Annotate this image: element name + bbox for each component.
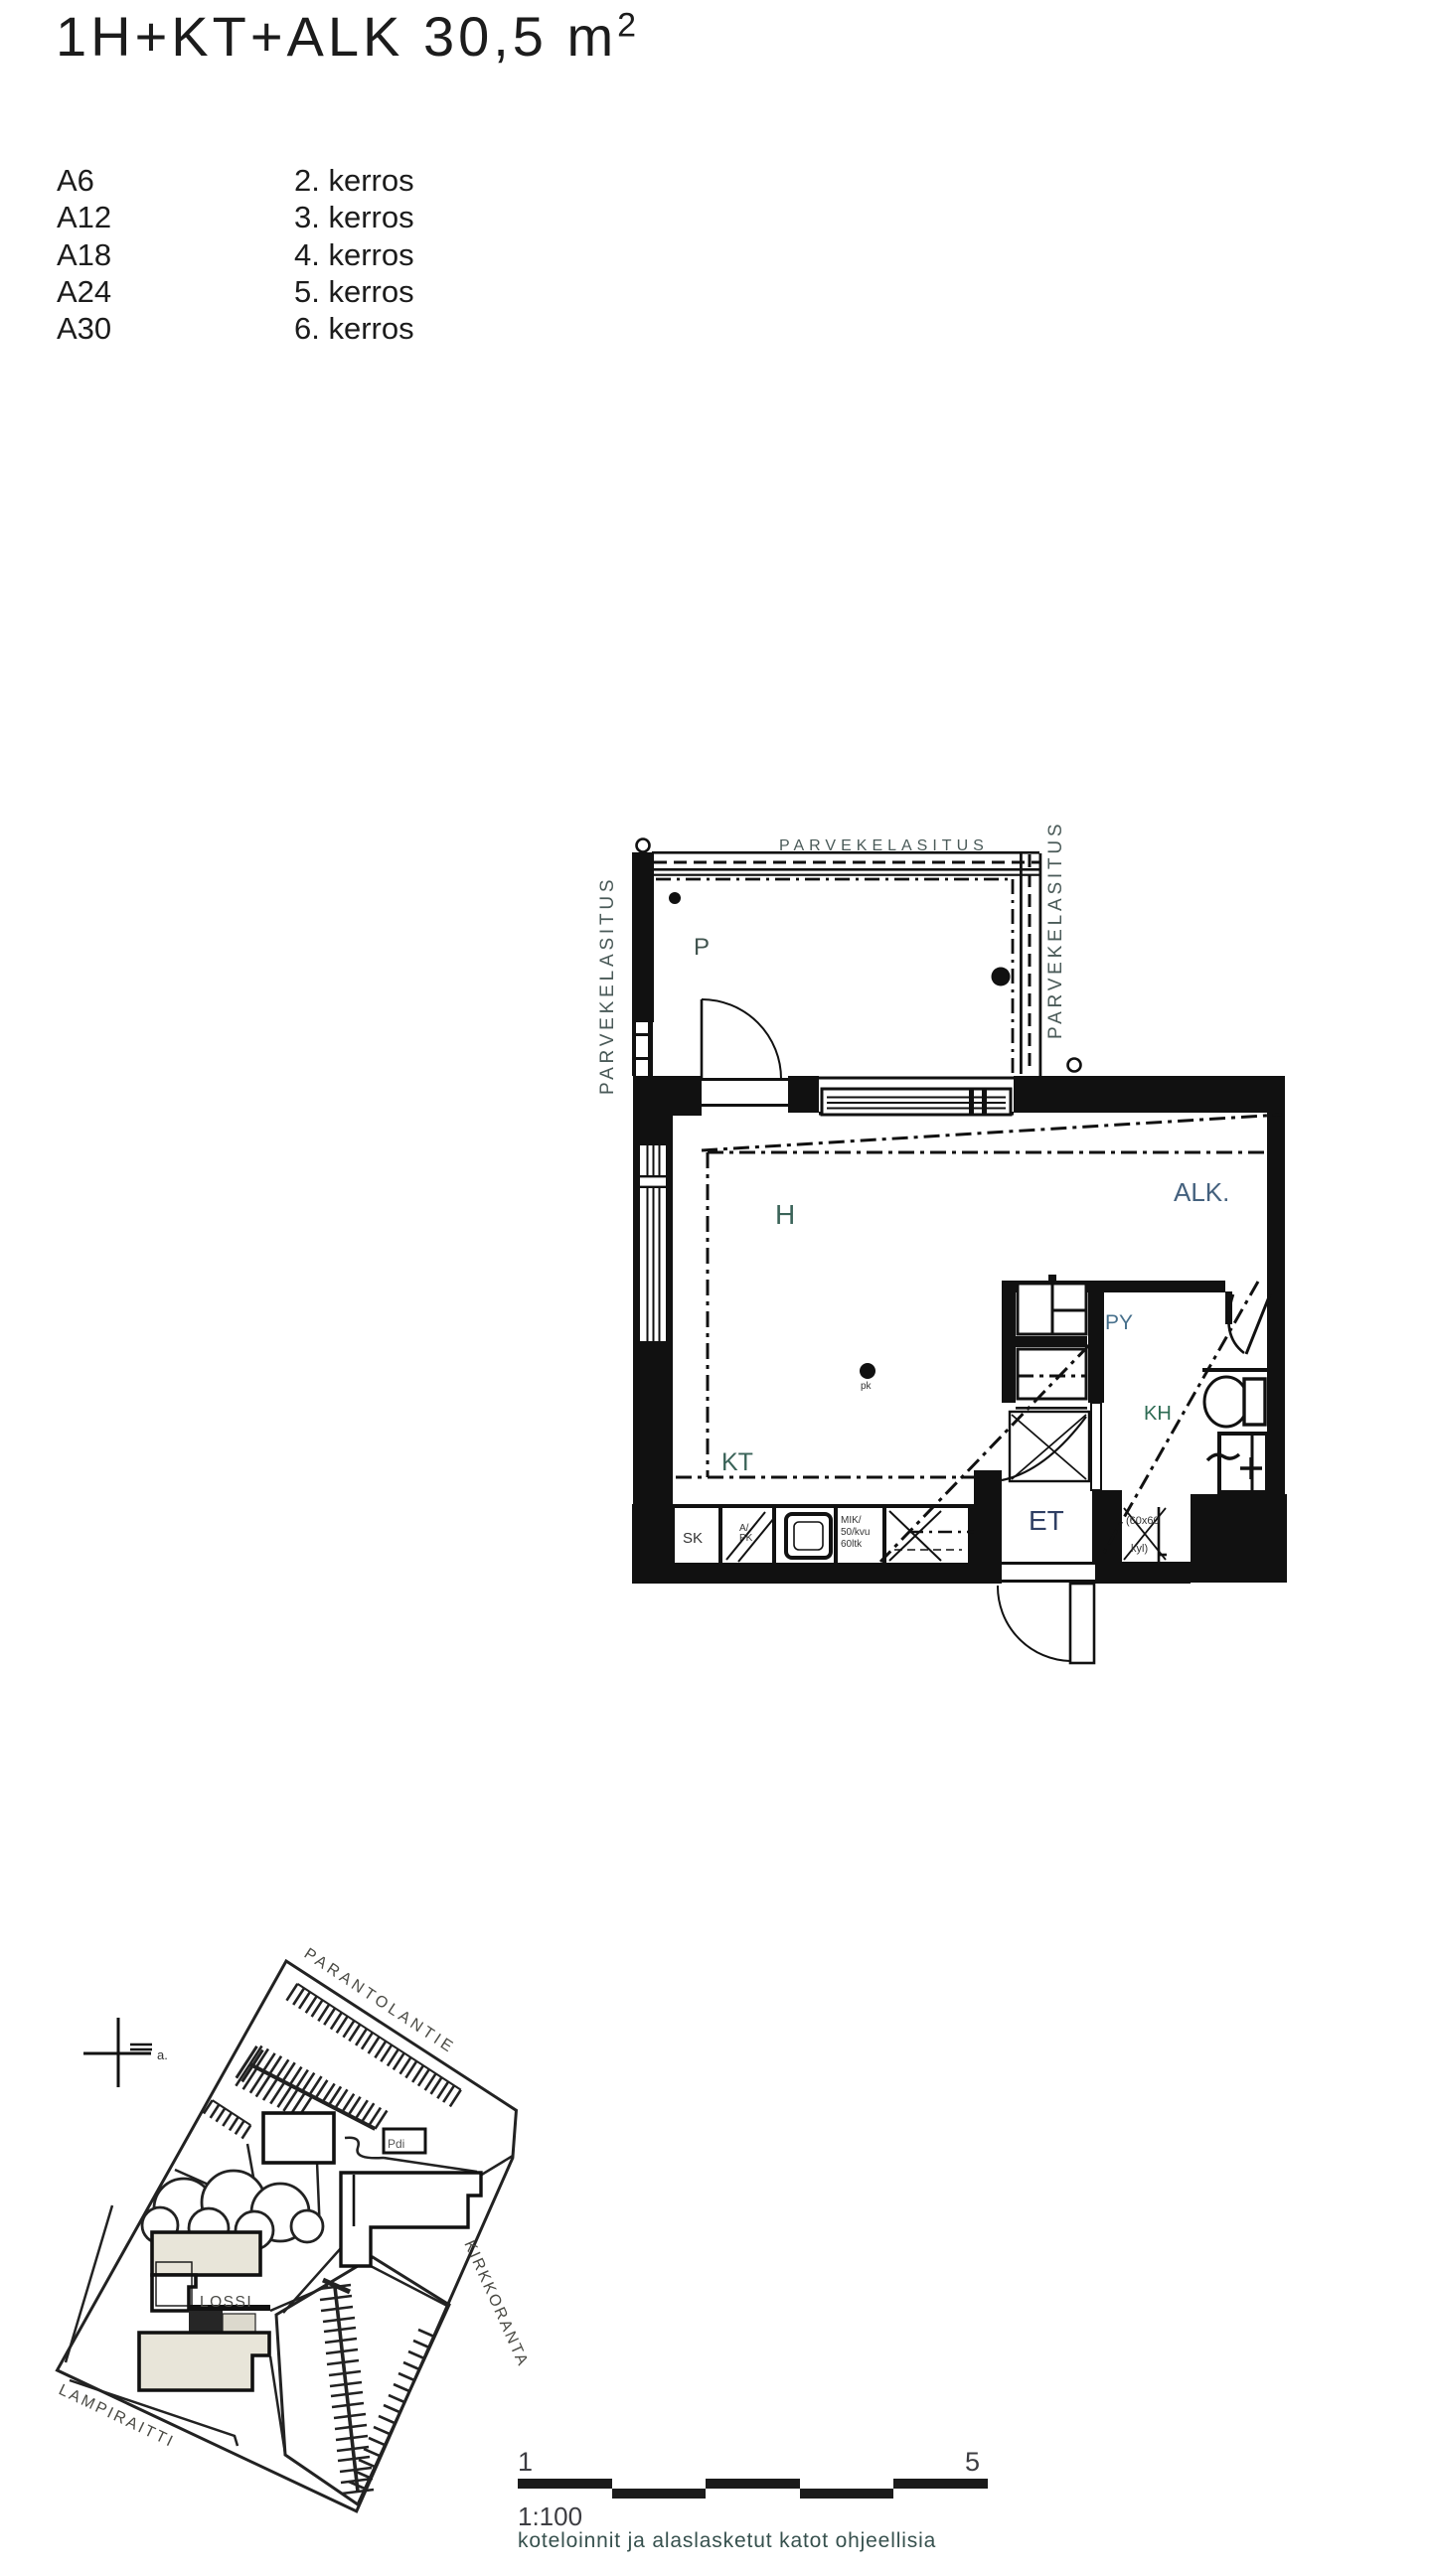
svg-text:LOSSI: LOSSI [200, 2294, 252, 2311]
svg-text:PARVEKELASITUS: PARVEKELASITUS [1045, 821, 1066, 1039]
svg-text:ET: ET [1029, 1505, 1064, 1536]
svg-text:PARVEKELASITUS: PARVEKELASITUS [779, 837, 989, 854]
svg-text:Pdi: Pdi [388, 2137, 404, 2151]
svg-text:PK: PK [739, 1533, 753, 1544]
svg-text:60ltk: 60ltk [841, 1539, 863, 1550]
svg-text:PY: PY [1105, 1311, 1133, 1334]
svg-text:H: H [775, 1199, 795, 1230]
svg-text:50/kvu: 50/kvu [841, 1527, 870, 1538]
svg-text:1: 1 [518, 2447, 533, 2477]
svg-text:KH: KH [1144, 1403, 1172, 1425]
svg-text:a.: a. [157, 2047, 168, 2062]
svg-text:P: P [694, 934, 710, 961]
svg-text:KT: KT [721, 1448, 753, 1476]
svg-text:SK: SK [683, 1530, 703, 1547]
svg-text:5: 5 [965, 2447, 980, 2477]
svg-text:KIRKKORANTA: KIRKKORANTA [460, 2238, 532, 2370]
svg-text:ALK.: ALK. [1174, 1177, 1229, 1207]
svg-text:PARVEKELASITUS: PARVEKELASITUS [597, 876, 618, 1095]
svg-text:(60x60: (60x60 [1126, 1515, 1160, 1527]
svg-text:pk: pk [861, 1381, 873, 1392]
svg-text:MIK/: MIK/ [841, 1515, 862, 1526]
svg-text:kyl): kyl) [1131, 1543, 1148, 1555]
